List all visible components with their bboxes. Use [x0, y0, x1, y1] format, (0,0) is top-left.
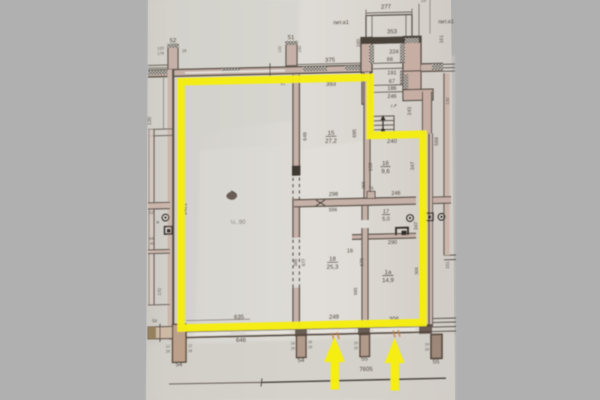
svg-text:15: 15 [421, 0, 427, 3]
svg-text:191: 191 [387, 70, 396, 76]
svg-text:¼ .90: ¼ .90 [230, 220, 246, 226]
svg-text:151: 151 [445, 261, 450, 269]
svg-text:28: 28 [425, 348, 429, 352]
svg-text:646: 646 [236, 338, 247, 344]
svg-text:190: 190 [297, 45, 302, 53]
svg-text:16: 16 [347, 248, 353, 254]
svg-text:52: 52 [170, 38, 177, 44]
svg-text:66: 66 [387, 57, 393, 63]
svg-text:679: 679 [360, 258, 366, 267]
svg-text:54: 54 [298, 358, 305, 364]
svg-text:353: 353 [387, 29, 398, 35]
svg-text:67: 67 [389, 79, 395, 85]
svg-text:28: 28 [308, 345, 312, 349]
svg-text:677: 677 [301, 258, 306, 266]
svg-text:178: 178 [157, 51, 164, 56]
svg-text:393: 393 [326, 82, 337, 88]
svg-text:153: 153 [368, 162, 374, 171]
svg-text:55: 55 [361, 356, 368, 362]
svg-text:240: 240 [387, 139, 398, 145]
svg-text:52: 52 [149, 210, 154, 215]
svg-text:290: 290 [388, 240, 397, 246]
svg-text:28: 28 [354, 346, 358, 350]
svg-text:7605: 7605 [359, 367, 373, 373]
svg-text:51: 51 [288, 35, 295, 41]
svg-text:36: 36 [291, 342, 295, 346]
svg-text:375: 375 [325, 58, 336, 64]
svg-text:347: 347 [414, 221, 420, 230]
svg-text:54: 54 [176, 362, 183, 368]
svg-text:28: 28 [166, 349, 170, 353]
svg-text:695: 695 [352, 129, 358, 138]
svg-text:14,9: 14,9 [382, 278, 394, 284]
svg-text:306: 306 [414, 267, 419, 275]
svg-text:45: 45 [150, 241, 155, 246]
svg-text:355: 355 [361, 181, 366, 189]
svg-text:243: 243 [407, 107, 413, 116]
svg-text:635: 635 [234, 315, 245, 321]
svg-text:347: 347 [410, 162, 416, 171]
svg-text:649: 649 [303, 132, 309, 141]
svg-text:246: 246 [391, 191, 400, 197]
svg-text:130: 130 [147, 116, 153, 125]
svg-text:59: 59 [152, 318, 158, 323]
svg-text:※: ※ [156, 220, 160, 225]
svg-text:18: 18 [425, 343, 429, 347]
svg-text:г↗: г↗ [391, 103, 397, 109]
svg-text:556: 556 [329, 207, 338, 213]
svg-text:277: 277 [381, 4, 392, 10]
svg-text:12: 12 [188, 344, 192, 348]
svg-text:224: 224 [389, 49, 398, 55]
svg-text:9,6: 9,6 [381, 169, 390, 175]
svg-text:пит.а1: пит.а1 [438, 19, 454, 25]
svg-text:298: 298 [329, 192, 338, 198]
svg-text:26: 26 [354, 341, 358, 345]
svg-text:пит.а1: пит.а1 [333, 20, 349, 26]
svg-text:249: 249 [329, 315, 340, 321]
svg-text:186: 186 [387, 86, 396, 92]
svg-text:246: 246 [387, 94, 396, 100]
svg-text:28: 28 [188, 349, 192, 353]
svg-text:685: 685 [353, 287, 358, 295]
svg-text:130: 130 [445, 97, 450, 105]
svg-text:27,2: 27,2 [325, 139, 337, 145]
svg-text:28: 28 [182, 48, 187, 53]
svg-text:170: 170 [157, 287, 162, 295]
svg-text:28: 28 [291, 347, 295, 351]
svg-text:161: 161 [439, 35, 445, 44]
svg-text:385: 385 [293, 258, 298, 266]
svg-text:569: 569 [434, 137, 440, 146]
svg-text:36: 36 [308, 340, 312, 344]
svg-text:25,3: 25,3 [327, 265, 339, 271]
svg-text:133: 133 [277, 45, 282, 53]
svg-text:75: 75 [368, 186, 374, 191]
svg-text:5,0: 5,0 [382, 216, 390, 222]
svg-text:55: 55 [433, 359, 440, 365]
svg-text:12: 12 [166, 344, 170, 348]
